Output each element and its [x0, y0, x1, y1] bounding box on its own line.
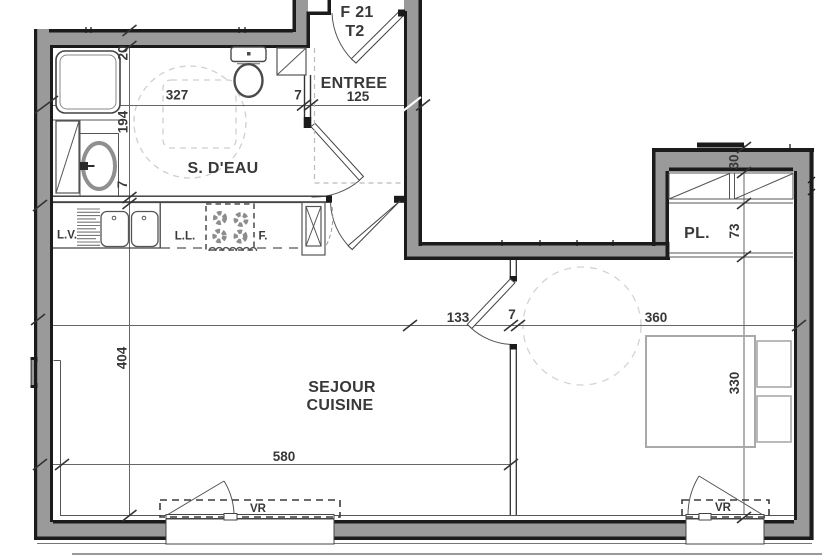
svg-text:73: 73: [727, 223, 742, 239]
svg-text:VR: VR: [715, 502, 732, 514]
svg-text:125: 125: [347, 89, 370, 104]
svg-text:7: 7: [115, 181, 130, 189]
svg-text:T2: T2: [345, 23, 364, 40]
svg-text:F 21: F 21: [340, 4, 373, 21]
svg-text:7: 7: [294, 88, 302, 103]
svg-text:327: 327: [166, 88, 189, 103]
svg-text:7: 7: [508, 307, 516, 322]
svg-text:360: 360: [645, 310, 668, 325]
svg-text:133: 133: [447, 310, 470, 325]
svg-text:VR: VR: [250, 503, 267, 515]
svg-text:PL.: PL.: [684, 225, 710, 242]
svg-text:L.L.: L.L.: [175, 231, 195, 243]
svg-text:194: 194: [116, 110, 131, 133]
svg-text:S. D'EAU: S. D'EAU: [187, 160, 258, 177]
svg-text:20: 20: [116, 45, 131, 60]
svg-text:404: 404: [115, 346, 130, 369]
svg-text:CUISINE: CUISINE: [307, 397, 374, 414]
svg-text:330: 330: [727, 372, 742, 395]
svg-text:580: 580: [273, 449, 296, 464]
svg-text:30: 30: [727, 154, 742, 169]
svg-text:SEJOUR: SEJOUR: [308, 379, 376, 396]
svg-text:L.V.: L.V.: [57, 230, 77, 242]
svg-text:F.: F.: [259, 231, 268, 243]
